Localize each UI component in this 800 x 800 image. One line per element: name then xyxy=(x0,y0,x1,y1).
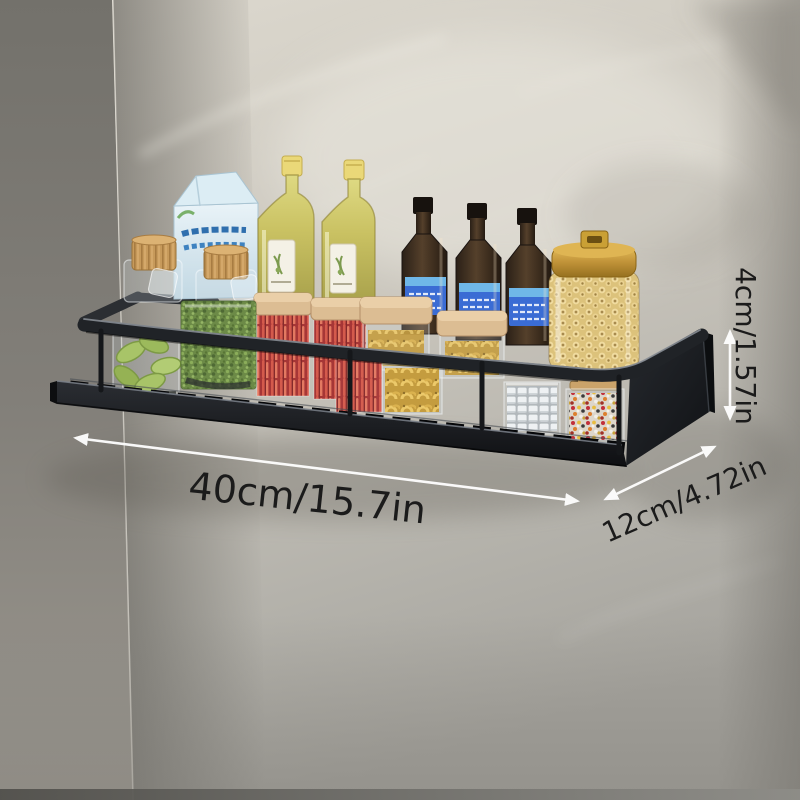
spice-rack-scene: 40cm/15.7in 12cm/4.72in 4cm/1.57in xyxy=(0,0,800,800)
sugar-cube-jar xyxy=(504,382,560,434)
gold-lid-canister xyxy=(549,231,639,370)
bottom-strip xyxy=(0,789,800,800)
chili-jar-front xyxy=(336,356,382,412)
height-dimension-label: 4cm/1.57in xyxy=(729,267,762,425)
pasta-jar-front xyxy=(382,364,442,414)
sprinkles-jar xyxy=(566,381,624,443)
product-image: 40cm/15.7in 12cm/4.72in 4cm/1.57in xyxy=(0,0,800,800)
bottom-shading xyxy=(0,615,800,800)
